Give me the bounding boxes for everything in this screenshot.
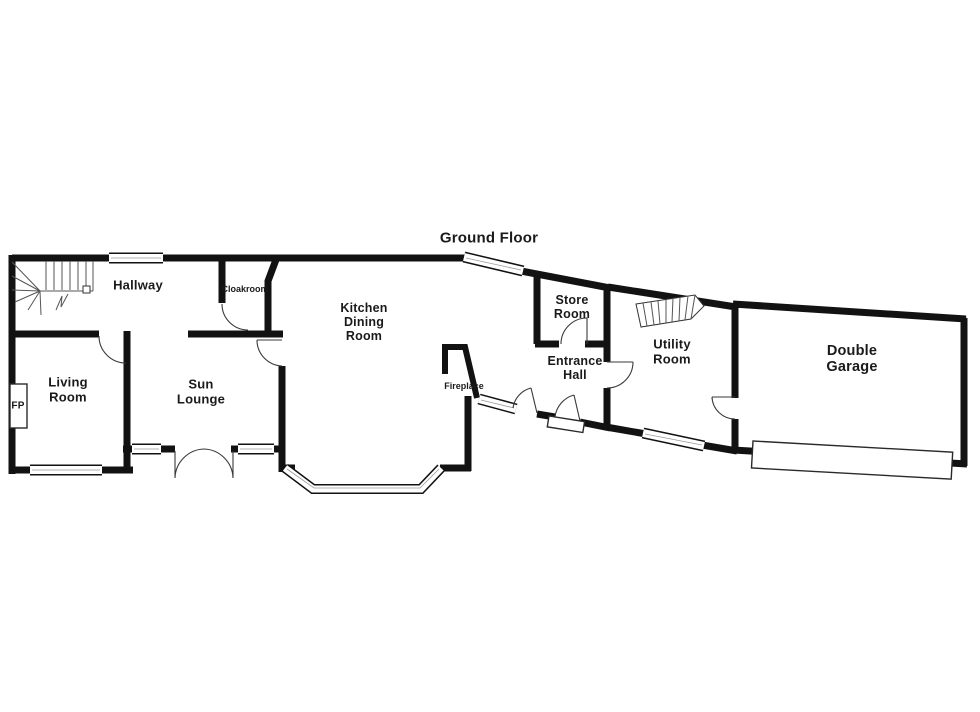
cloakroom-door-arc xyxy=(222,304,248,330)
living-room-door-arc xyxy=(99,336,126,363)
fireplace-fp-label: FP xyxy=(11,400,24,411)
utility-staircase-icon xyxy=(636,295,704,327)
page-title: Ground Floor xyxy=(440,231,538,248)
room-label-hallway: Hallway xyxy=(113,279,163,294)
room-label-living-room: Living Room xyxy=(48,375,87,404)
main-staircase-icon xyxy=(12,261,93,315)
kitchen-hall-door-arc xyxy=(513,388,537,413)
room-label-utility-room: Utility Room xyxy=(653,337,691,366)
store-room-door-arc xyxy=(561,318,587,344)
room-label-double-garage: Double Garage xyxy=(826,343,877,375)
room-label-kitchen-dining-room: Kitchen Dining Room xyxy=(340,301,387,343)
utility-garage-door-arc xyxy=(712,397,735,419)
room-label-cloakroom: Cloakroom xyxy=(221,284,268,294)
french-doors-arcs xyxy=(175,449,233,478)
fireplace-label: Fireplace xyxy=(444,381,484,391)
room-label-sun-lounge: Sun Lounge xyxy=(177,377,225,406)
garage-door xyxy=(751,441,952,479)
floorplan-page: Ground Floor Hallway Cloakroom Living Ro… xyxy=(0,0,980,712)
sun-lounge-door-arc xyxy=(257,340,282,366)
room-label-store-room: Store Room xyxy=(554,293,590,321)
bay-window xyxy=(285,468,441,489)
entrance-utility-door-arc xyxy=(607,362,633,388)
room-label-entrance-hall: Entrance Hall xyxy=(547,354,602,382)
